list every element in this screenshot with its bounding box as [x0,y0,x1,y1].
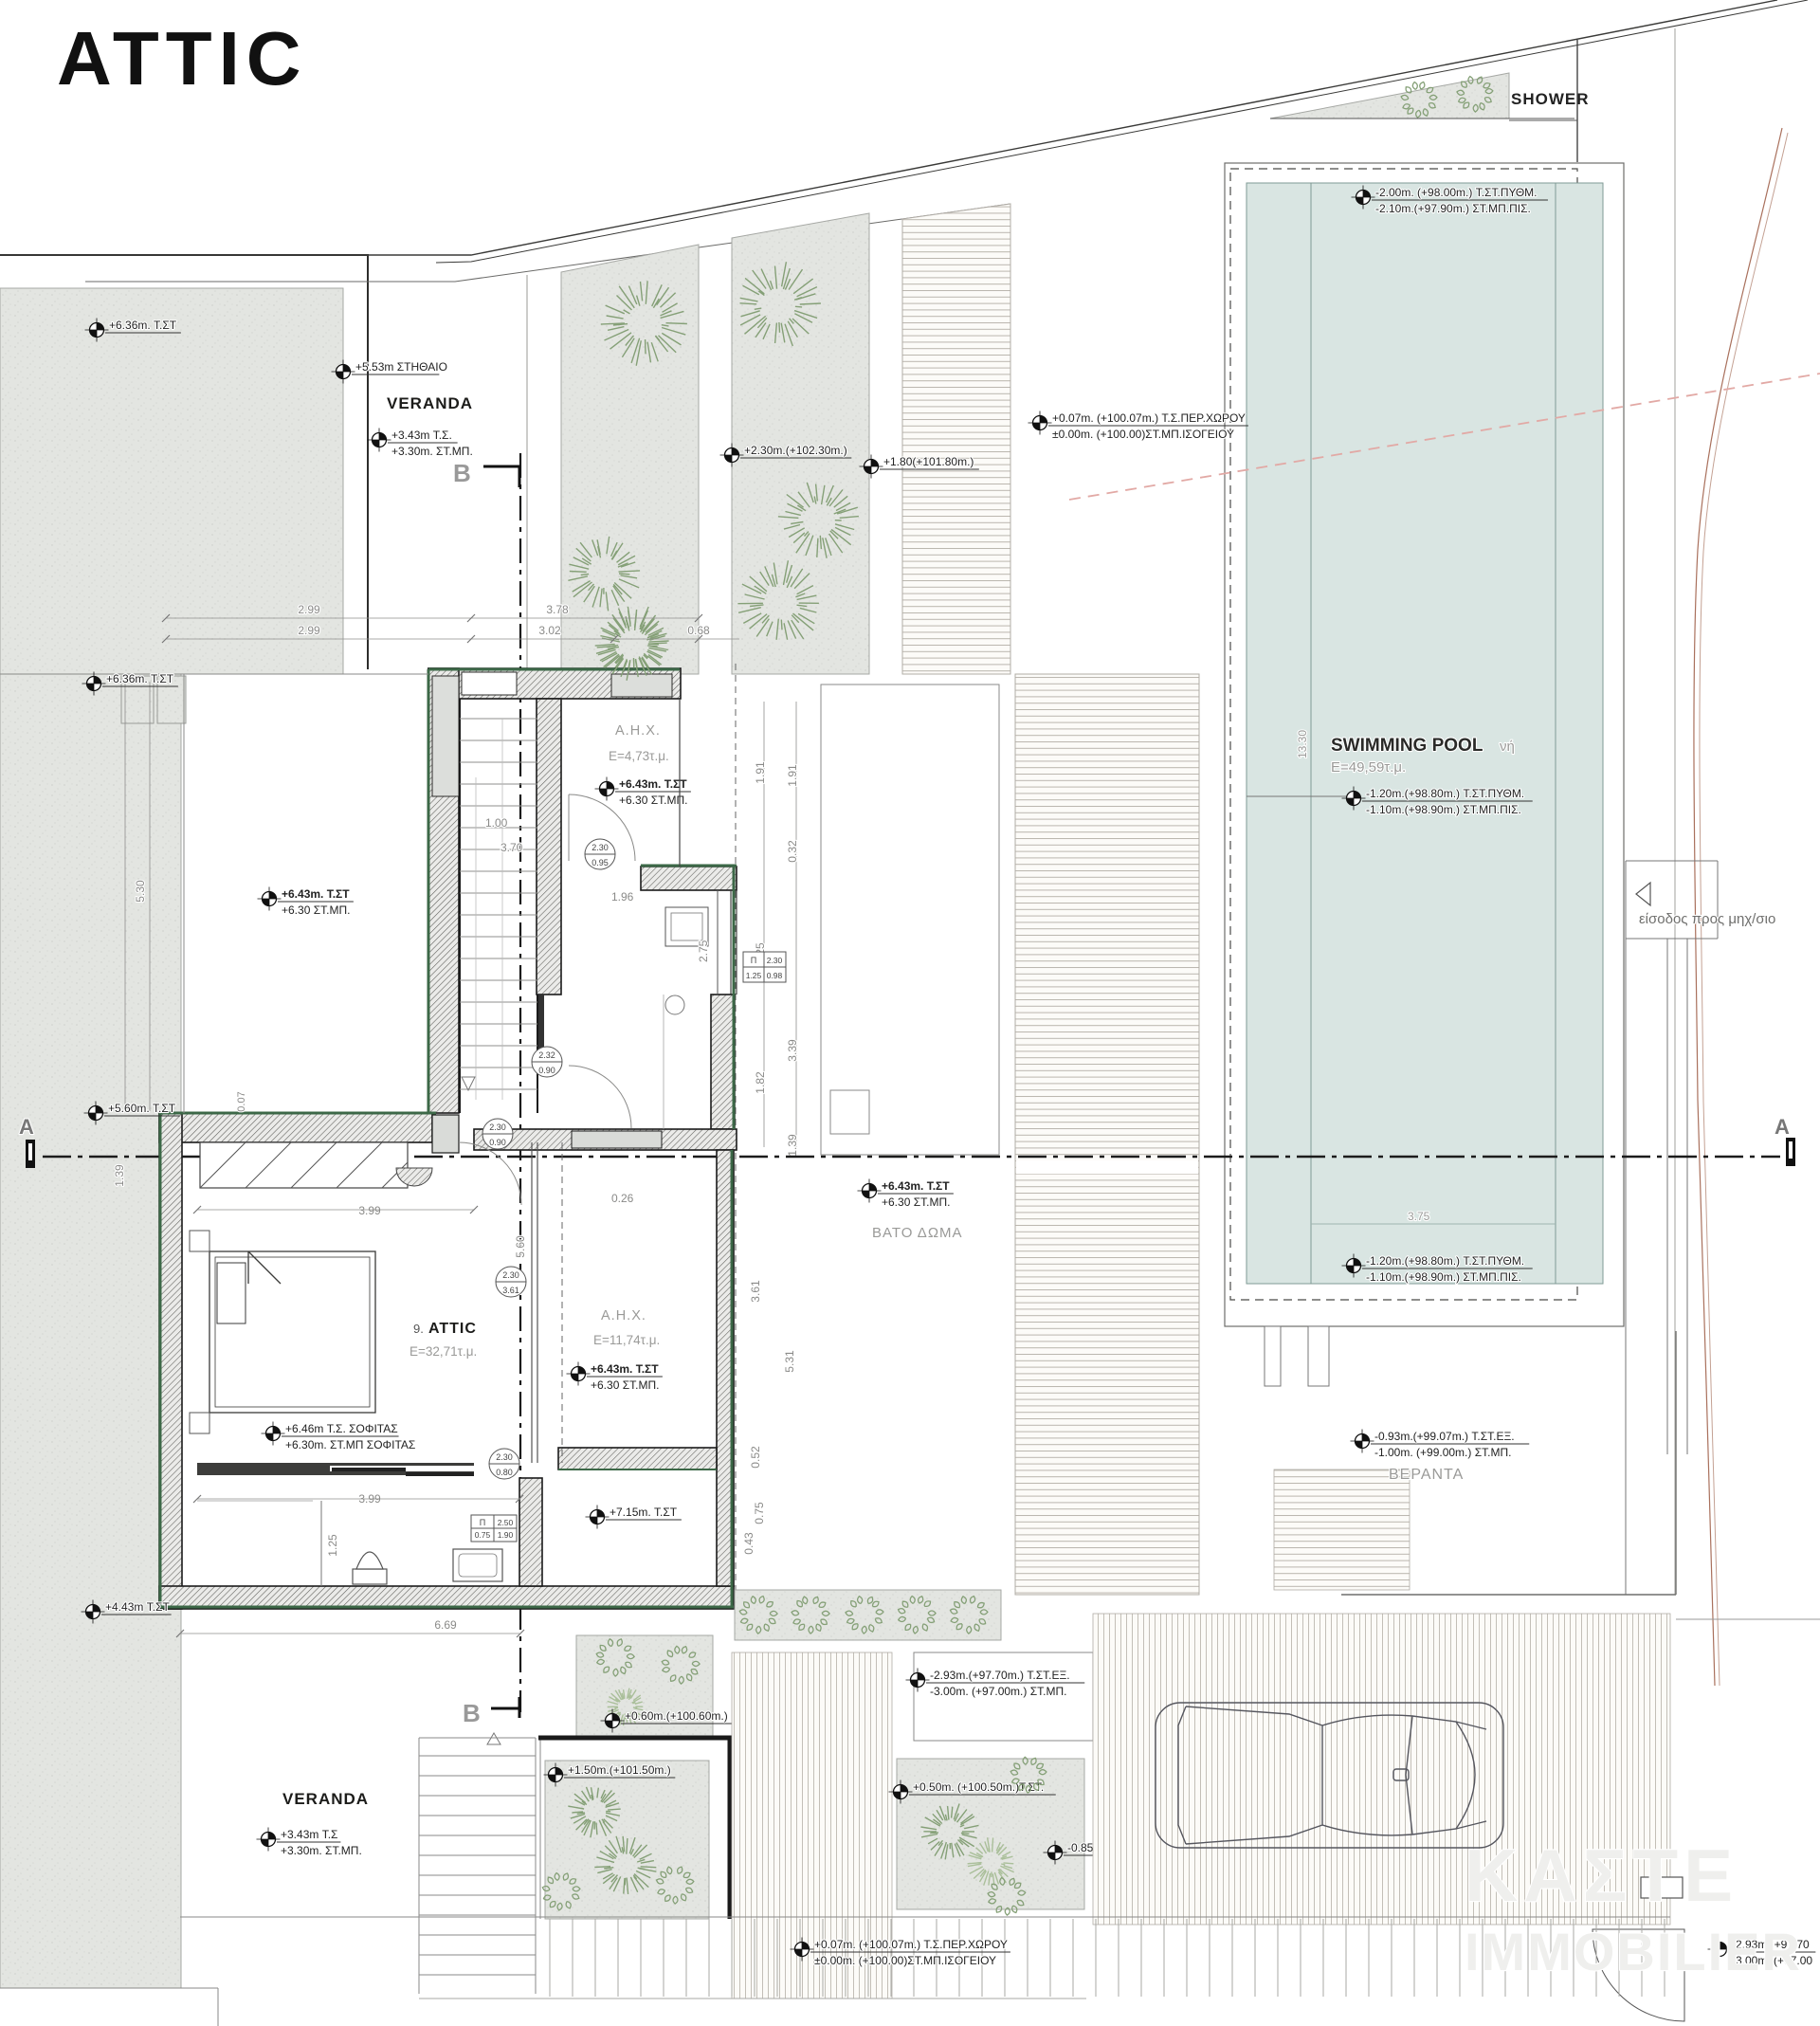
svg-text:+6.30 ΣΤ.ΜΠ.: +6.30 ΣΤ.ΜΠ. [619,794,687,807]
svg-text:0.68: 0.68 [687,624,710,637]
svg-text:0.07: 0.07 [236,1091,247,1111]
svg-text:1.39: 1.39 [113,1164,126,1187]
svg-text:+7.15m. Τ.ΣΤ: +7.15m. Τ.ΣΤ [610,1506,678,1519]
svg-text:ΒΕΡΑΝΤΑ: ΒΕΡΑΝΤΑ [1389,1467,1464,1483]
svg-text:1.00: 1.00 [485,816,508,830]
svg-text:A.H.X.: A.H.X. [601,1308,646,1323]
svg-text:1.25: 1.25 [326,1534,339,1557]
svg-text:+6.30 ΣΤ.ΜΠ.: +6.30 ΣΤ.ΜΠ. [282,903,350,917]
svg-text:6.69: 6.69 [434,1618,457,1632]
svg-text:SWIMMING POOL: SWIMMING POOL [1331,736,1483,756]
svg-text:B: B [453,459,471,487]
svg-text:3.02: 3.02 [538,624,561,637]
svg-text:0.80: 0.80 [496,1468,513,1477]
svg-text:-2.00m. (+98.00m.) Τ.ΣΤ.ΠΥΘΜ.: -2.00m. (+98.00m.) Τ.ΣΤ.ΠΥΘΜ. [1375,186,1537,199]
svg-text:1.91: 1.91 [754,761,767,784]
svg-text:1.96: 1.96 [611,890,634,903]
svg-text:+1.80(+101.80m.): +1.80(+101.80m.) [883,455,974,468]
svg-text:ATTIC: ATTIC [428,1321,477,1337]
svg-text:3.70: 3.70 [500,841,523,854]
svg-text:B: B [463,1699,481,1727]
svg-text:-1.10m.(+98.90m.) ΣΤ.ΜΠ.ΠΙΣ.: -1.10m.(+98.90m.) ΣΤ.ΜΠ.ΠΙΣ. [1366,803,1521,816]
svg-text:2.99: 2.99 [298,624,320,637]
svg-text:-1.20m.(+98.80m.) Τ.ΣΤ.ΠΥΘΜ.: -1.20m.(+98.80m.) Τ.ΣΤ.ΠΥΘΜ. [1366,1254,1524,1268]
svg-text:2.30: 2.30 [591,843,609,852]
svg-text:VERANDA: VERANDA [282,1790,369,1808]
svg-text:A.H.X.: A.H.X. [615,723,661,739]
svg-text:E=49,59τ.μ.: E=49,59τ.μ. [1331,759,1406,776]
svg-text:+6.30 ΣΤ.ΜΠ.: +6.30 ΣΤ.ΜΠ. [591,1378,659,1392]
svg-text:είσοδος προς μηχ/σιο: είσοδος προς μηχ/σιο [1639,911,1775,927]
svg-text:2.99: 2.99 [298,603,320,616]
svg-text:+5.53m ΣΤΗΘΑΙΟ: +5.53m ΣΤΗΘΑΙΟ [355,360,447,374]
svg-text:2.30: 2.30 [496,1452,513,1462]
svg-text:2.75: 2.75 [697,940,710,962]
svg-text:2.30: 2.30 [502,1270,519,1280]
svg-text:0.52: 0.52 [749,1446,762,1469]
svg-text:9.: 9. [413,1322,424,1336]
svg-text:1.25: 1.25 [746,971,762,980]
svg-text:0.95: 0.95 [591,858,609,867]
svg-text:+0.07m. (+100.07m.) Τ.Σ.ΠΕΡ.ΧΩ: +0.07m. (+100.07m.) Τ.Σ.ΠΕΡ.ΧΩΡΟΥ [814,1938,1008,1951]
svg-text:+5.60m. Τ.ΣΤ: +5.60m. Τ.ΣΤ [108,1102,176,1115]
svg-text:+0.07m. (+100.07m.) Τ.Σ.ΠΕΡ.ΧΩ: +0.07m. (+100.07m.) Τ.Σ.ΠΕΡ.ΧΩΡΟΥ [1052,411,1246,425]
svg-text:+6.43m. Τ.ΣΤ: +6.43m. Τ.ΣΤ [619,777,687,791]
svg-text:-1.20m.(+98.80m.) Τ.ΣΤ.ΠΥΘΜ.: -1.20m.(+98.80m.) Τ.ΣΤ.ΠΥΘΜ. [1366,787,1524,800]
svg-text:2.32: 2.32 [538,1050,555,1060]
svg-text:ATTIC: ATTIC [57,16,308,100]
svg-text:+6.36m. Τ.ΣΤ: +6.36m. Τ.ΣΤ [106,672,174,685]
svg-text:E=32,71τ.μ.: E=32,71τ.μ. [409,1344,477,1359]
svg-text:0.75: 0.75 [475,1530,491,1540]
svg-text:+3.30m. ΣΤ.ΜΠ.: +3.30m. ΣΤ.ΜΠ. [281,1844,362,1857]
svg-text:5.60: 5.60 [514,1235,527,1258]
svg-text:0.43: 0.43 [742,1532,755,1555]
svg-text:1.82: 1.82 [754,1071,767,1094]
svg-text:-2.10m.(+97.90m.) ΣΤ.ΜΠ.ΠΙΣ.: -2.10m.(+97.90m.) ΣΤ.ΜΠ.ΠΙΣ. [1375,202,1531,215]
svg-text:3.99: 3.99 [358,1204,381,1217]
svg-text:νή: νή [1500,739,1515,755]
svg-text:0.90: 0.90 [538,1066,555,1075]
svg-text:+6.46m Τ.Σ. ΣΟΦΙΤΑΣ: +6.46m Τ.Σ. ΣΟΦΙΤΑΣ [285,1422,398,1435]
svg-text:-2.93m.(+97.70m.) Τ.ΣΤ.ΕΞ.: -2.93m.(+97.70m.) Τ.ΣΤ.ΕΞ. [930,1669,1070,1682]
svg-text:E=4,73τ.μ.: E=4,73τ.μ. [609,749,669,763]
svg-text:1.91: 1.91 [786,764,799,787]
svg-text:13.30: 13.30 [1296,730,1309,758]
svg-text:2.30: 2.30 [767,956,783,965]
svg-text:0.26: 0.26 [611,1192,634,1205]
svg-text:+1.50m.(+101.50m.): +1.50m.(+101.50m.) [568,1763,671,1777]
svg-text:+6.30m. ΣΤ.ΜΠ ΣΟΦΙΤΑΣ: +6.30m. ΣΤ.ΜΠ ΣΟΦΙΤΑΣ [285,1438,415,1451]
svg-text:0.32: 0.32 [786,840,799,863]
svg-text:+3.43m Τ.Σ.: +3.43m Τ.Σ. [391,429,452,442]
svg-text:+4.43m Τ.ΣΤ: +4.43m Τ.ΣΤ [105,1600,170,1614]
svg-text:-0.93m.(+99.07m.) Τ.ΣΤ.ΕΞ.: -0.93m.(+99.07m.) Τ.ΣΤ.ΕΞ. [1374,1430,1515,1443]
svg-text:VERANDA: VERANDA [387,394,473,412]
svg-text:+6.43m. Τ.ΣΤ: +6.43m. Τ.ΣΤ [882,1179,950,1193]
svg-text:+6.43m. Τ.ΣΤ: +6.43m. Τ.ΣΤ [282,887,350,901]
svg-text:A: A [19,1115,34,1139]
svg-text:+2.30m.(+102.30m.): +2.30m.(+102.30m.) [744,444,847,457]
svg-text:ΒΑΤΟ ΔΩΜΑ: ΒΑΤΟ ΔΩΜΑ [872,1225,963,1241]
svg-text:+6.36m. Τ.ΣΤ: +6.36m. Τ.ΣΤ [109,319,177,332]
svg-text:+0.60m.(+100.60m.): +0.60m.(+100.60m.) [625,1709,728,1723]
svg-text:+3.30m. ΣΤ.ΜΠ.: +3.30m. ΣΤ.ΜΠ. [391,445,473,458]
svg-text:A: A [1774,1115,1790,1139]
svg-text:5.30: 5.30 [134,880,147,903]
svg-text:+3.43m Τ.Σ: +3.43m Τ.Σ [281,1828,337,1841]
svg-text:Π: Π [480,1518,486,1527]
svg-text:2.30: 2.30 [489,1123,506,1132]
svg-text:1.90: 1.90 [498,1530,514,1540]
svg-text:ΚΑΣΤΕ: ΚΑΣΤΕ [1465,1834,1738,1917]
svg-text:E=11,74τ.μ.: E=11,74τ.μ. [593,1333,660,1347]
svg-text:3.61: 3.61 [749,1280,762,1303]
svg-text:2.50: 2.50 [498,1518,514,1527]
svg-text:3.61: 3.61 [502,1286,519,1295]
svg-text:-1.00m. (+99.00m.) ΣΤ.ΜΠ.: -1.00m. (+99.00m.) ΣΤ.ΜΠ. [1374,1446,1511,1459]
svg-text:±0.00m. (+100.00)ΣΤ.ΜΠ.ΙΣΟΓΕΙΟ: ±0.00m. (+100.00)ΣΤ.ΜΠ.ΙΣΟΓΕΙΟΥ [814,1954,996,1967]
svg-text:0.98: 0.98 [767,971,783,980]
svg-text:IMMOBILIER: IMMOBILIER [1465,1922,1802,1981]
svg-text:+6.43m. Τ.ΣΤ: +6.43m. Τ.ΣΤ [591,1362,659,1376]
svg-text:-3.00m. (+97.00m.) ΣΤ.ΜΠ.: -3.00m. (+97.00m.) ΣΤ.ΜΠ. [930,1685,1066,1698]
svg-text:±0.00m. (+100.00)ΣΤ.ΜΠ.ΙΣΟΓΕΙΟ: ±0.00m. (+100.00)ΣΤ.ΜΠ.ΙΣΟΓΕΙΟΥ [1052,428,1234,441]
svg-text:3.78: 3.78 [546,603,569,616]
svg-text:1.39: 1.39 [786,1134,799,1157]
svg-text:0.90: 0.90 [489,1138,506,1147]
svg-text:0.75: 0.75 [753,1502,766,1524]
svg-text:Π: Π [751,956,757,965]
svg-text:+6.30 ΣΤ.ΜΠ.: +6.30 ΣΤ.ΜΠ. [882,1196,950,1209]
svg-text:-1.10m.(+98.90m.) ΣΤ.ΜΠ.ΠΙΣ.: -1.10m.(+98.90m.) ΣΤ.ΜΠ.ΠΙΣ. [1366,1270,1521,1284]
svg-text:5.31: 5.31 [783,1350,796,1373]
svg-text:3.75: 3.75 [1408,1210,1430,1223]
svg-text:3.39: 3.39 [786,1039,799,1062]
